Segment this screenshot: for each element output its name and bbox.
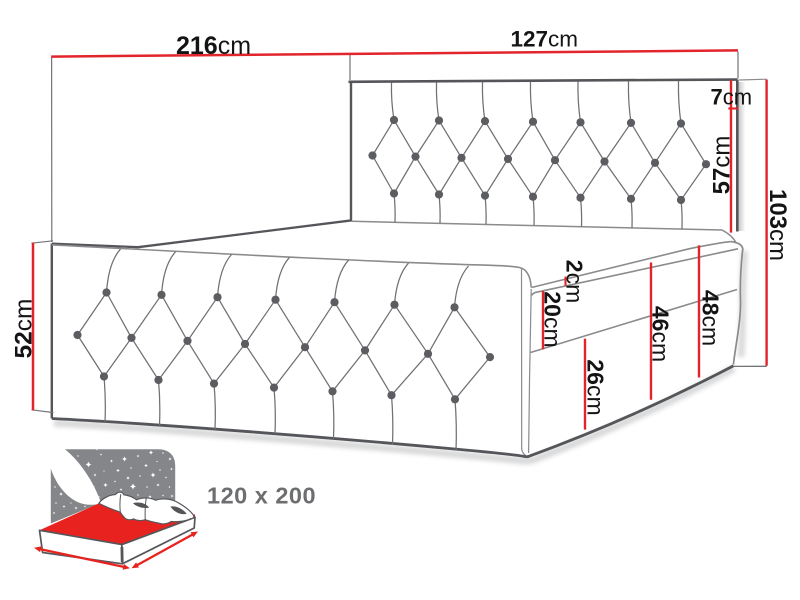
svg-text:120 x 200: 120 x 200 — [207, 483, 316, 509]
svg-text:127cm: 127cm — [511, 27, 579, 52]
svg-text:7cm: 7cm — [711, 85, 753, 110]
svg-text:46cm: 46cm — [648, 306, 674, 362]
svg-text:52cm: 52cm — [10, 299, 37, 359]
svg-text:20cm: 20cm — [540, 291, 566, 347]
svg-text:48cm: 48cm — [698, 290, 724, 346]
svg-text:103cm: 103cm — [764, 189, 791, 261]
svg-text:216cm: 216cm — [176, 32, 251, 60]
svg-text:57cm: 57cm — [709, 136, 736, 195]
svg-text:26cm: 26cm — [583, 359, 609, 415]
